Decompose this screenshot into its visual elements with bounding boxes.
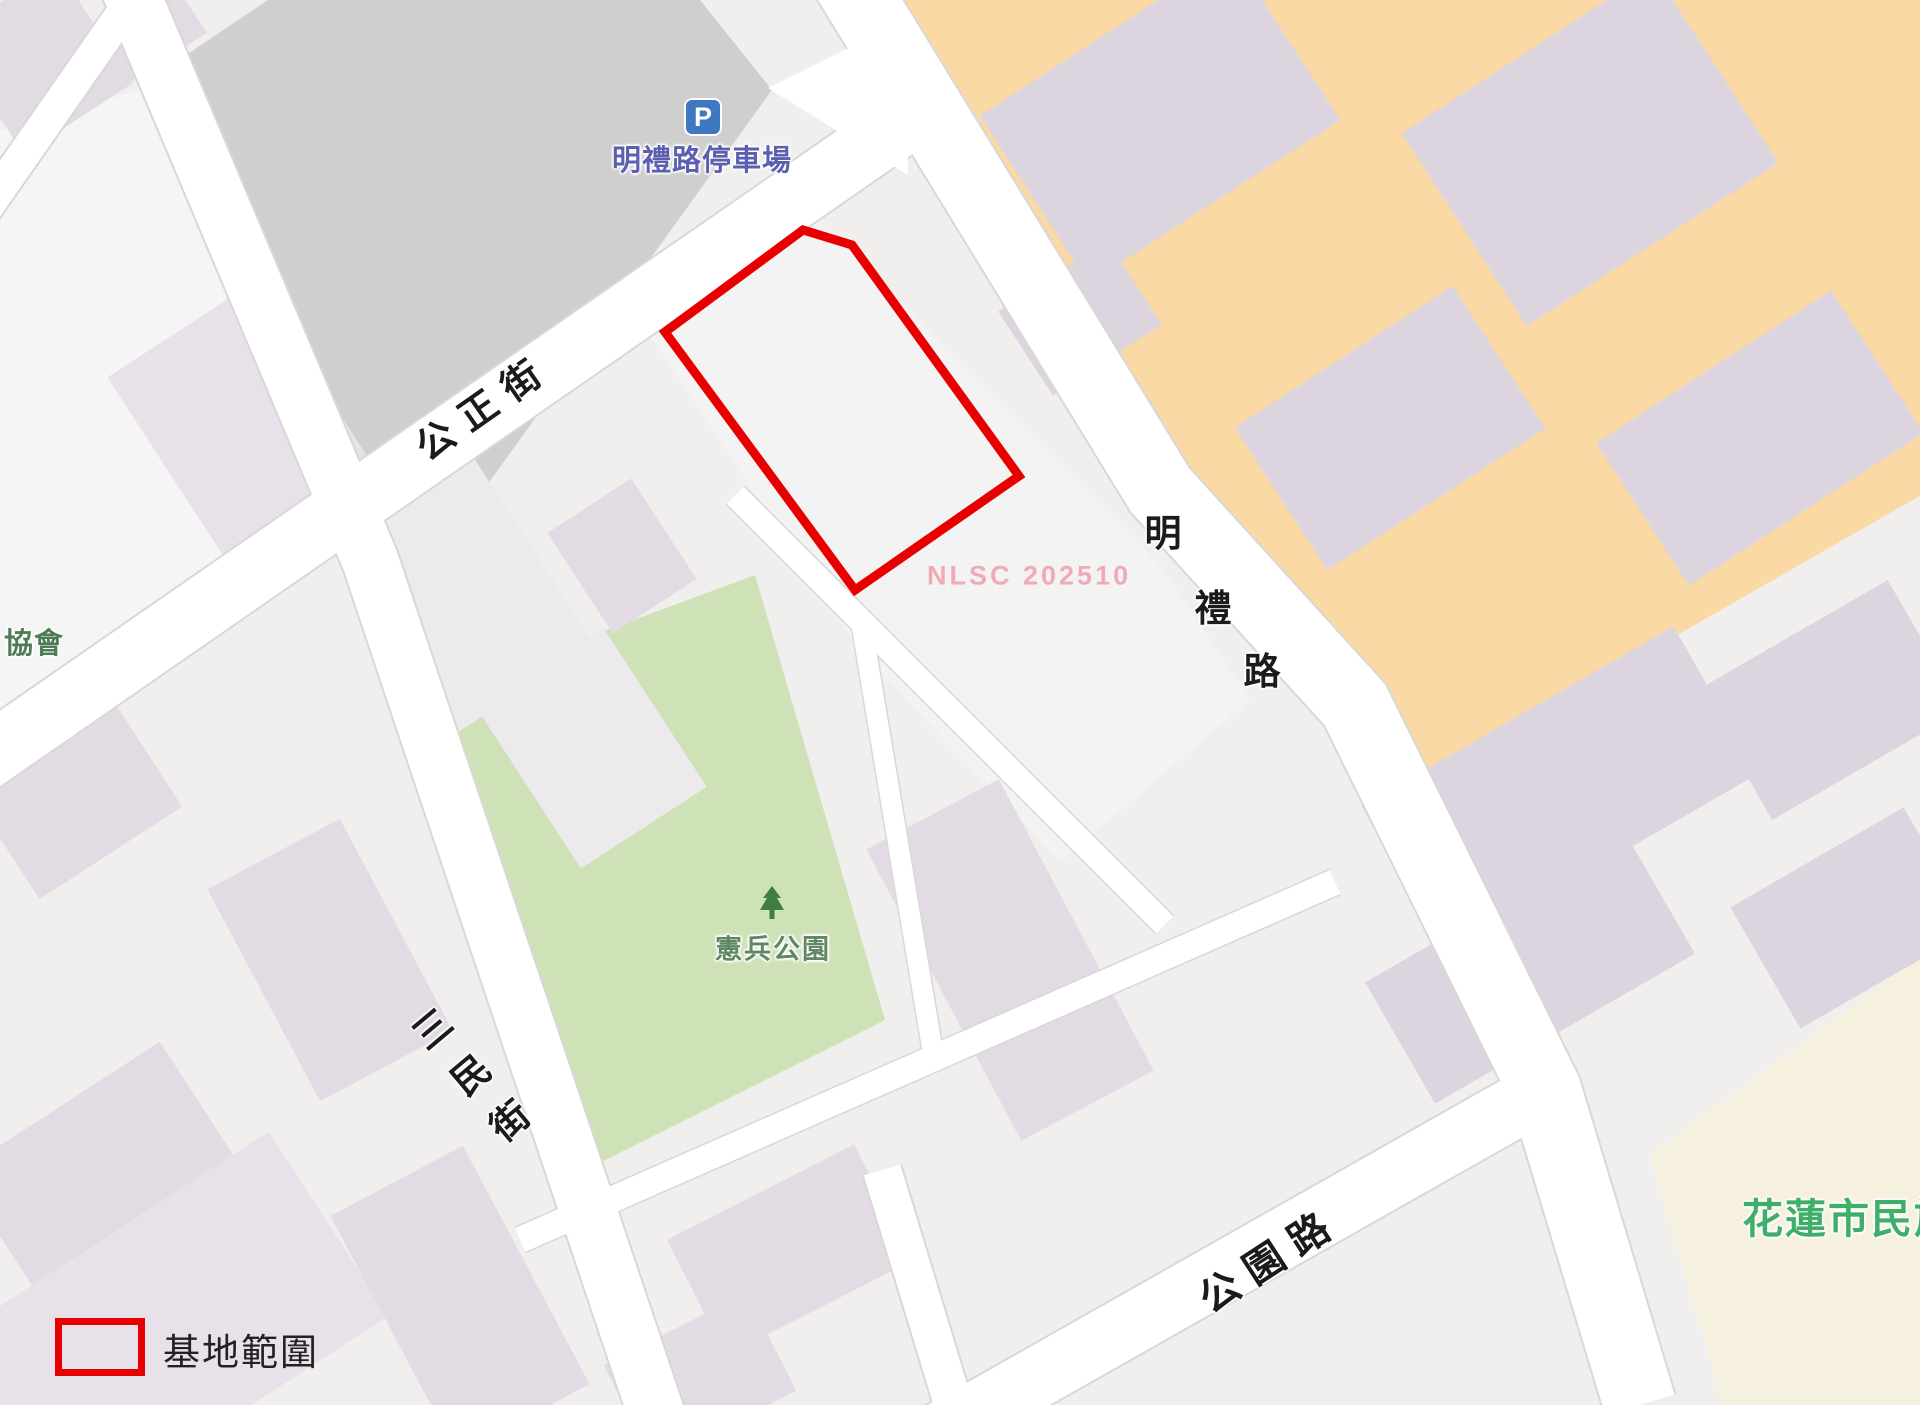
legend-site-label: 基地範圍 — [163, 1322, 319, 1376]
road-label-mingli-char: 明 — [1145, 503, 1182, 557]
legend-site-swatch — [55, 1318, 145, 1376]
road-label-mingli-char: 禮 — [1195, 578, 1232, 632]
park-label: 憲兵公園 — [715, 928, 831, 967]
parking-lot-label: 明禮路停車場 — [612, 137, 792, 179]
association-label-partial: 協會 — [4, 620, 64, 662]
map-base-layer — [0, 0, 1920, 1405]
parking-icon[interactable]: P — [686, 100, 720, 134]
tree-icon — [757, 886, 787, 920]
district-label: 花蓮市民族 — [1742, 1185, 1920, 1245]
map-watermark: NLSC 202510 — [927, 561, 1131, 592]
road-label-mingli-char: 路 — [1244, 641, 1281, 695]
map-canvas[interactable]: P 明禮路停車場 公正街 明 禮 路 三 民 街 公園路 憲兵公園 NLSC 2… — [0, 0, 1920, 1405]
